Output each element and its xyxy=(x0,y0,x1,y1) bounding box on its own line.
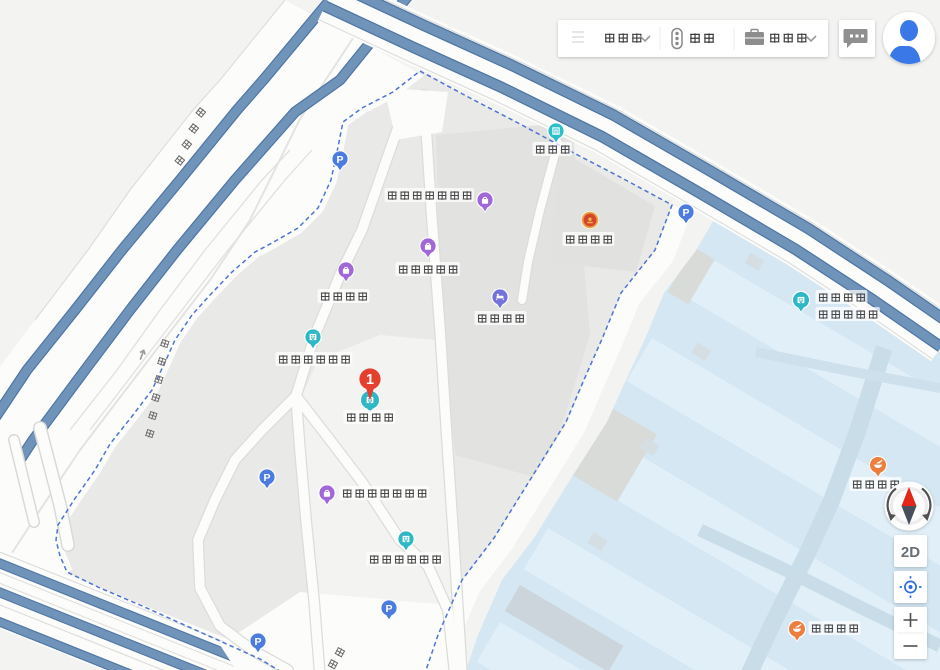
svg-text:P: P xyxy=(385,603,392,615)
svg-text:P: P xyxy=(682,207,689,219)
svg-text:1: 1 xyxy=(366,372,374,388)
svg-text:P: P xyxy=(254,636,261,648)
svg-text:P: P xyxy=(336,154,343,166)
svg-text:P: P xyxy=(263,472,270,484)
svg-text:2D: 2D xyxy=(901,544,920,561)
